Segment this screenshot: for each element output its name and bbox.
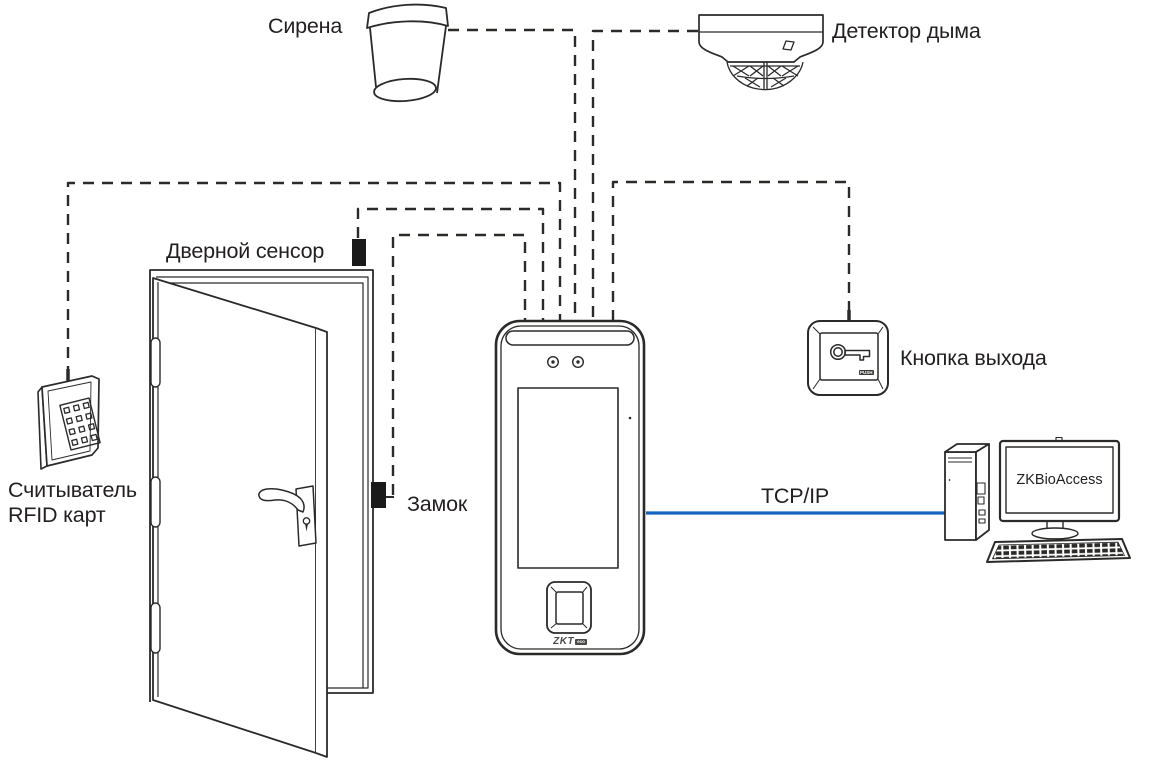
smoke-detector-device <box>699 15 823 90</box>
smoke-detector-label: Детектор дыма <box>832 19 981 44</box>
door <box>150 270 373 757</box>
door-hinge-middle <box>151 477 160 527</box>
computer-keyboard <box>987 539 1130 562</box>
door-sensor-label: Дверной сенсор <box>166 239 324 264</box>
terminal-mic-hole <box>629 417 632 420</box>
door-hinge-bottom <box>151 603 160 653</box>
software-name-label: ZKBioAccess <box>1006 472 1113 488</box>
door-handle-plate <box>296 486 316 546</box>
door-sensor-device <box>352 239 366 266</box>
wiring-diagram: Сирена Детектор дыма Дверной сенсор Замо… <box>0 0 1150 765</box>
computer-tower <box>945 444 989 540</box>
computer-workstation <box>945 438 1130 563</box>
push-label: PUSH <box>859 370 874 376</box>
lock-label: Замок <box>407 492 467 517</box>
smoke-detector-wire <box>593 31 698 321</box>
tcpip-label: TCP/IP <box>745 484 845 509</box>
door-leaf-edge <box>316 328 327 757</box>
lock-device <box>371 482 394 508</box>
door-hinge-top <box>151 338 160 387</box>
computer-monitor <box>1000 438 1119 540</box>
terminal-brand-logo: ZKTeco <box>549 636 591 647</box>
rfid-reader-device <box>38 376 100 469</box>
exit-button-wire <box>613 182 849 321</box>
siren-device <box>367 5 448 104</box>
exit-button-label: Кнопка выхода <box>900 346 1047 371</box>
siren-label: Сирена <box>268 14 342 39</box>
rfid-reader-label: Считыватель RFID карт <box>8 478 137 528</box>
access-terminal-device <box>496 321 644 654</box>
door-leaf <box>153 278 316 753</box>
smoke-detector-grille <box>727 62 803 90</box>
exit-button-device <box>808 321 888 395</box>
siren-wire <box>448 30 575 321</box>
door-sensor-wire <box>358 209 543 321</box>
